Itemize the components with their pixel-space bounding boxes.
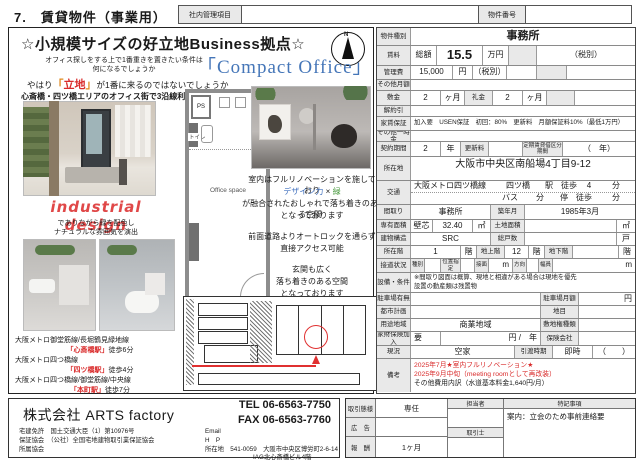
cell-above-value: 12 (505, 246, 529, 258)
cell-remarks-black: その他費用内訳（水道基本料金1,640円/月） (414, 379, 635, 388)
cell-parking-fee-label: 駐車場月額 (541, 293, 579, 305)
cell-remarks-red-1: 2025年7月★室内フルリノベーション★ (414, 361, 635, 370)
site-plan-route-arrow (312, 355, 320, 364)
cell-built-value: 1985年3月 (525, 205, 635, 219)
cell-fixed-term-value: （ 年） (563, 142, 635, 156)
cell-cityplan-label: 都市計画 (377, 306, 411, 318)
company-contact-block: Email H P 所在地 541-0059 大阪市中央区博労町2-6-14 I… (205, 428, 338, 461)
reno-green-word: 緑 (333, 187, 341, 196)
cell-road-dir: 方向 (513, 259, 527, 272)
cell-traffic-walk-unit: 分 (597, 181, 635, 192)
staff-value (448, 409, 504, 428)
cell-parking-label: 駐車場有無 (377, 293, 411, 305)
hp-label: H P (205, 437, 338, 446)
empty-cell (525, 220, 617, 232)
cell-status-label: 現況 (377, 346, 411, 358)
cell-key-label: 礼金 (465, 91, 493, 105)
company-box: 株式会社 ARTS factory TEL 06-6563-7750 FAX 0… (8, 398, 340, 458)
header-strip: 社内管理項目 物件番号 (178, 5, 632, 24)
deal-fee-value: 1ヶ月 (376, 437, 448, 457)
addr-line-2: IAG北心斎橋ビル4階 (205, 454, 338, 461)
cell-struct-label: 建物構造 (377, 233, 411, 245)
photo-hallway-wall-edge (313, 104, 316, 150)
internal-control-value (242, 6, 479, 23)
cell-mgmt-label: 管理費 (377, 66, 411, 79)
photo-hallway-artwork-blob (268, 115, 282, 133)
cell-type-value: 事務所 (411, 28, 635, 45)
cell-floor-label: 所在階 (377, 246, 411, 258)
reno-line-2: デザイン力 × 緑 (247, 186, 377, 197)
cell-guarantee-label: 家賃保証 (377, 117, 411, 130)
empty-cell (425, 259, 441, 272)
license-value: 国土交通大臣（1）第10976号 (50, 428, 134, 435)
guarantee-assoc-label: 保証協会 (19, 437, 44, 444)
access-line-2: 直接アクセス可能 (243, 243, 381, 254)
equip-notes: ※間取り図面は概算、現地と相違がある場合は現地を優先 設置の動産類は残置物 (411, 273, 635, 292)
company-tel: TEL 06-6563-7750 (239, 399, 331, 411)
entrance-line-1: 玄関も広く (243, 264, 381, 275)
metro-line-2: 大阪メトロ四つ橋線 (15, 355, 185, 365)
tel-label: TEL (239, 399, 260, 411)
photo-entrance-mat (65, 167, 127, 183)
cell-rent-unit: 万円 (483, 46, 509, 65)
reno-x: × (326, 187, 331, 196)
empty-cell (507, 66, 537, 79)
cell-equip-label: 設備・条件 (377, 273, 411, 292)
cell-traffic-label: 交通 (377, 181, 411, 204)
cell-bus-label: バス (495, 193, 525, 204)
cell-equip-note-1: ※間取り図面は概算、現地と相違がある場合は現地を優先 (414, 274, 635, 282)
site-plan-unit (344, 306, 365, 354)
cell-area-unit: ㎡ (473, 220, 491, 232)
metro-line-3: 大阪メトロ四つ橋線/御堂筋線/中央線 (15, 375, 185, 385)
metro-access-block: 大阪メトロ御堂筋線/長堀鶴見緑地線 「心斎橋駅」徒歩6分 大阪メトロ四つ橋線 「… (15, 334, 185, 388)
cell-area-label: 専有面積 (377, 220, 411, 232)
empty-cell (411, 306, 541, 318)
catch-title: ☆小規模サイズの好立地Business拠点☆ (21, 33, 305, 54)
cell-parking-fee-unit: 円 (579, 293, 635, 305)
empty-cell (509, 46, 537, 65)
photo-washroom (23, 239, 96, 331)
tel-value: 06-6563-7750 (262, 399, 331, 411)
photo-hallway-plant-right (335, 86, 369, 100)
cell-floor-unit: 階 (461, 246, 477, 258)
empty-cell (461, 259, 475, 272)
cell-floor-value: 1 (411, 246, 461, 258)
empty-cell (579, 319, 635, 331)
cell-below-unit: 階 (619, 246, 635, 258)
cell-fixed-term-label: 定期賃貸借区分期間 (523, 142, 563, 156)
cell-insurance-unit: 円 / 年 (441, 332, 541, 345)
empty-cell (547, 91, 575, 105)
empty-cell (411, 193, 495, 204)
photo-entrance-curtain (115, 105, 151, 157)
reno-design-word: デザイン力 (283, 187, 323, 196)
site-plan (183, 296, 377, 391)
cell-road-label: 接道状況 (377, 259, 411, 272)
cell-onetime-label: その他一時金 (377, 131, 411, 141)
cell-rent-value: 15.5 (437, 46, 483, 65)
cell-landcat-label: 地目 (541, 306, 579, 318)
cell-guarantee-value: 加入要 USEN保証 初回：80% 更新料 月額保証料10%（最低1万円） (411, 117, 635, 130)
cell-stop-unit: 分 (597, 193, 635, 204)
empty-cell (376, 418, 448, 437)
metro-walk-2: 徒歩4分 (109, 367, 134, 374)
cell-remarks-label: 備考 (377, 359, 411, 392)
empty-cell (411, 106, 635, 116)
cell-key-unit: ヶ月 (523, 91, 547, 105)
metro-station-2: 「四ツ橋駅」 (67, 367, 109, 374)
empty-cell (575, 91, 635, 105)
industrial-sub-2: ナチュラルな雰囲気を演出 (31, 227, 161, 237)
site-plan-unit (198, 317, 248, 330)
deal-value-col: 専任 1ヶ月 (376, 399, 448, 457)
compact-office-title: 「Compact Office」 (197, 52, 373, 79)
cell-road-face: 接面 (475, 259, 489, 272)
cell-address-label: 所在地 (377, 157, 411, 180)
cell-renewal-label: 更新料 (461, 142, 489, 156)
company-license-block: 宅建免許 国土交通大臣（1）第10976号 保証協会 （公社）全国宅地建物取引業… (19, 428, 154, 454)
floor-plan-fixture-1 (219, 97, 230, 108)
floor-plan-wall-block-2 (189, 223, 199, 261)
photo-entrance-door-glass (86, 114, 102, 154)
agent-value (448, 438, 504, 457)
floor-plan-fixture-2 (235, 97, 246, 108)
photo-toilet (99, 239, 175, 331)
fax-value: 06-6563-7760 (262, 414, 331, 426)
cell-type-label: 物件種別 (377, 28, 411, 45)
cell-built-label: 築年月 (491, 205, 525, 219)
license-label: 宅建免許 (19, 428, 44, 435)
cell-remarks-red-2: 2025年9月中旬（meeting roomとして再改装） (414, 370, 635, 379)
cell-mgmt-tax: （税別） (473, 66, 507, 79)
site-plan-hatch-left (186, 299, 194, 385)
intro3-quote-close: 」 (86, 79, 97, 91)
flyer-area: ☆小規模サイズの好立地Business拠点☆ N オフィス探しをする上で1番重き… (8, 27, 374, 394)
deal-table: 取引態様 広 告 報 酬 専任 1ヶ月 担当者 取引士 特記事項 案内：立会のた… (345, 398, 636, 458)
photo-toilet-plant (107, 245, 137, 255)
agent-label: 取引士 (448, 428, 504, 438)
cell-equip-note-2: 設置の動産類は残置物 (414, 283, 635, 291)
metro-walk-1: 徒歩6分 (109, 347, 134, 354)
fax-label: FAX (238, 414, 259, 426)
photo-washroom-counter (59, 265, 89, 305)
cell-road-type: 種別 (411, 259, 425, 272)
cell-insurance-req: 要 (411, 332, 441, 345)
empty-cell (411, 131, 635, 141)
cell-above-unit: 階 (529, 246, 545, 258)
photo-entrance (23, 101, 156, 196)
photo-hallway-plant-left (255, 88, 281, 100)
cell-handover-label: 引渡時期 (515, 346, 553, 358)
cell-road-m2: m (553, 259, 635, 272)
staff-label: 担当者 (448, 399, 504, 409)
page-title: 7. 賃貸物件（事業用） (14, 7, 167, 26)
photo-entrance-wood-panel (49, 101, 59, 196)
cell-rent-total-label: 総額 (411, 46, 437, 65)
site-plan-sidewalk (198, 373, 360, 385)
access-line-1: 前面道路よりオートロックを通らず (243, 231, 381, 242)
cell-other-monthly-label: その他月額 (377, 80, 411, 90)
cell-handover-paren: （ ） (593, 346, 635, 358)
internal-control-label: 社内管理項目 (179, 6, 242, 23)
cell-bus-unit: 分 (525, 193, 555, 204)
empty-cell (411, 293, 541, 305)
intro3-quote-open: 「 (53, 79, 64, 91)
cell-insurance-label: 家財保険加入 (377, 332, 411, 345)
cell-rent-label: 賃料 (377, 46, 411, 65)
deal-label-col: 取引態様 広 告 報 酬 (346, 399, 376, 457)
empty-cell (537, 66, 567, 79)
metro-station-3: 「本町駅」 (70, 387, 105, 394)
addr-label: 所在地 (205, 446, 224, 453)
photo-entrance-door (81, 109, 111, 169)
photo-hallway-chair (331, 124, 357, 148)
cell-insurer-label: 保険会社 (541, 332, 579, 345)
deal-type-value: 専任 (376, 399, 448, 418)
photo-hallway (251, 86, 371, 169)
site-plan-highlight-circle (304, 325, 328, 349)
cell-contract-value: 2 (411, 142, 441, 156)
spec-table: 物件種別 事務所 賃料 総額 15.5 万円 （税別） 管理費 15,000 円… (376, 27, 636, 394)
cell-traffic-line: 大阪メトロ四ツ橋線 (411, 181, 495, 192)
deal-fee-label: 報 酬 (346, 437, 376, 457)
cell-contract-label: 契約期間 (377, 142, 411, 156)
cell-land-unit: ㎡ (617, 220, 635, 232)
site-plan-unit (198, 303, 248, 316)
cell-traffic-walk-val: 4 (581, 181, 597, 192)
intro-line-2: 何になるでしょうか (39, 64, 209, 74)
reno-line-4: となっております (247, 210, 377, 221)
site-plan-unit (277, 306, 299, 354)
photo-toilet-tank (145, 273, 165, 295)
photo-washroom-plant (35, 245, 75, 255)
property-number-label: 物件番号 (479, 6, 526, 23)
cell-cancel-label: 解約引 (377, 106, 411, 116)
remarks-content: 2025年7月★室内フルリノベーション★ 2025年9月中旬（meeting r… (411, 359, 635, 392)
cell-stop-label: 停 徒歩 (555, 193, 597, 204)
cell-handover-value: 即時 (553, 346, 593, 358)
cell-deposit-unit: ヶ月 (441, 91, 465, 105)
cell-area-value: 32.40 (433, 220, 473, 232)
guarantee-assoc-value: （公社）全国宅地建物取引業保証協会 (50, 437, 154, 444)
cell-road-m1: m (489, 259, 513, 272)
cell-deposit-label: 敷金 (377, 91, 411, 105)
special-notes-label: 特記事項 (504, 399, 635, 409)
cell-struct-value: SRC (411, 233, 491, 245)
cell-contract-unit: 年 (441, 142, 461, 156)
cell-units-label: 総戸数 (491, 233, 525, 245)
empty-cell (527, 259, 539, 272)
intro3-pre: やはり (27, 80, 53, 90)
cell-land-label: 土地面積 (491, 220, 525, 232)
cell-mgmt-unit: 円 (453, 66, 473, 79)
intro3-location-word: 立地 (64, 79, 86, 91)
cell-address-value: 大阪市中央区南船場4丁目9-12 (411, 157, 635, 180)
cell-units-unit: 戸 (617, 233, 635, 245)
company-name: 株式会社 ARTS factory (23, 405, 174, 425)
cell-road-pos: 位置指定 (441, 259, 461, 272)
empty-cell (489, 142, 523, 156)
cell-area-type: 壁芯 (411, 220, 433, 232)
cell-below-label: 地下階 (545, 246, 573, 258)
cell-deposit-value: 2 (411, 91, 441, 105)
cell-traffic-station: 四ツ橋 (495, 181, 541, 192)
empty-cell (579, 306, 635, 318)
cell-above-label: 地上階 (477, 246, 505, 258)
addr-line-1: 541-0059 大阪市中央区博労町2-6-14 (230, 446, 338, 453)
email-label: Email (205, 428, 338, 437)
deal-staff-col: 担当者 取引士 (448, 399, 504, 457)
property-flyer-page: 7. 賃貸物件（事業用） 社内管理項目 物件番号 ☆小規模サイズの好立地Busi… (0, 0, 640, 461)
cell-mgmt-value: 15,000 (411, 66, 453, 79)
metro-station-1: 「心斎橋駅」 (67, 347, 109, 354)
photo-entrance-green-wall (23, 107, 49, 177)
empty-cell (573, 246, 619, 258)
cell-layout-value: 事務所 (411, 205, 491, 219)
traffic-cell-group: 大阪メトロ四ツ橋線 四ツ橋 駅 徒歩 4 分 バス 分 停 徒歩 分 (411, 181, 635, 204)
empty-cell (525, 233, 617, 245)
cell-key-value: 2 (493, 91, 523, 105)
property-number-value (526, 6, 631, 23)
site-plan-route-line (192, 365, 316, 367)
entrance-line-2: 落ち着きのある空間 (243, 276, 381, 287)
cell-zone-value: 商業地域 (411, 319, 541, 331)
cell-layout-label: 間取り (377, 205, 411, 219)
site-plan-unit (198, 331, 248, 344)
metro-walk-3: 徒歩7分 (105, 387, 130, 394)
photo-entrance-stand (119, 159, 127, 185)
deal-notes-col: 特記事項 案内：立会のため事前連絡要 (504, 399, 635, 457)
special-notes-value: 案内：立会のため事前連絡要 (504, 409, 635, 457)
empty-cell (411, 80, 635, 90)
cell-rent-tax: （税別） (537, 46, 635, 65)
site-plan-hatch-core (250, 301, 272, 363)
cell-road-width: 幅員 (539, 259, 553, 272)
photo-washroom-sink (29, 279, 55, 293)
deal-type-label: 取引態様 (346, 399, 376, 418)
cell-landright-label: 敷地権種類 (541, 319, 579, 331)
photo-hallway-artwork (259, 104, 291, 140)
association-label: 所属協会 (19, 446, 154, 455)
company-fax: FAX 06-6563-7760 (238, 414, 331, 426)
metro-line-1: 大阪メトロ御堂筋線/長堀鶴見緑地線 (15, 335, 185, 345)
empty-cell (579, 332, 635, 345)
cell-traffic-walk-pre: 駅 徒歩 (541, 181, 581, 192)
empty-cell (567, 66, 635, 79)
floor-plan-toilet-fixture (201, 125, 213, 143)
floor-plan-ps-label: PS (191, 95, 211, 119)
cell-zone-label: 用途地域 (377, 319, 411, 331)
deal-ad-label: 広 告 (346, 418, 376, 437)
cell-status-value: 空家 (411, 346, 515, 358)
